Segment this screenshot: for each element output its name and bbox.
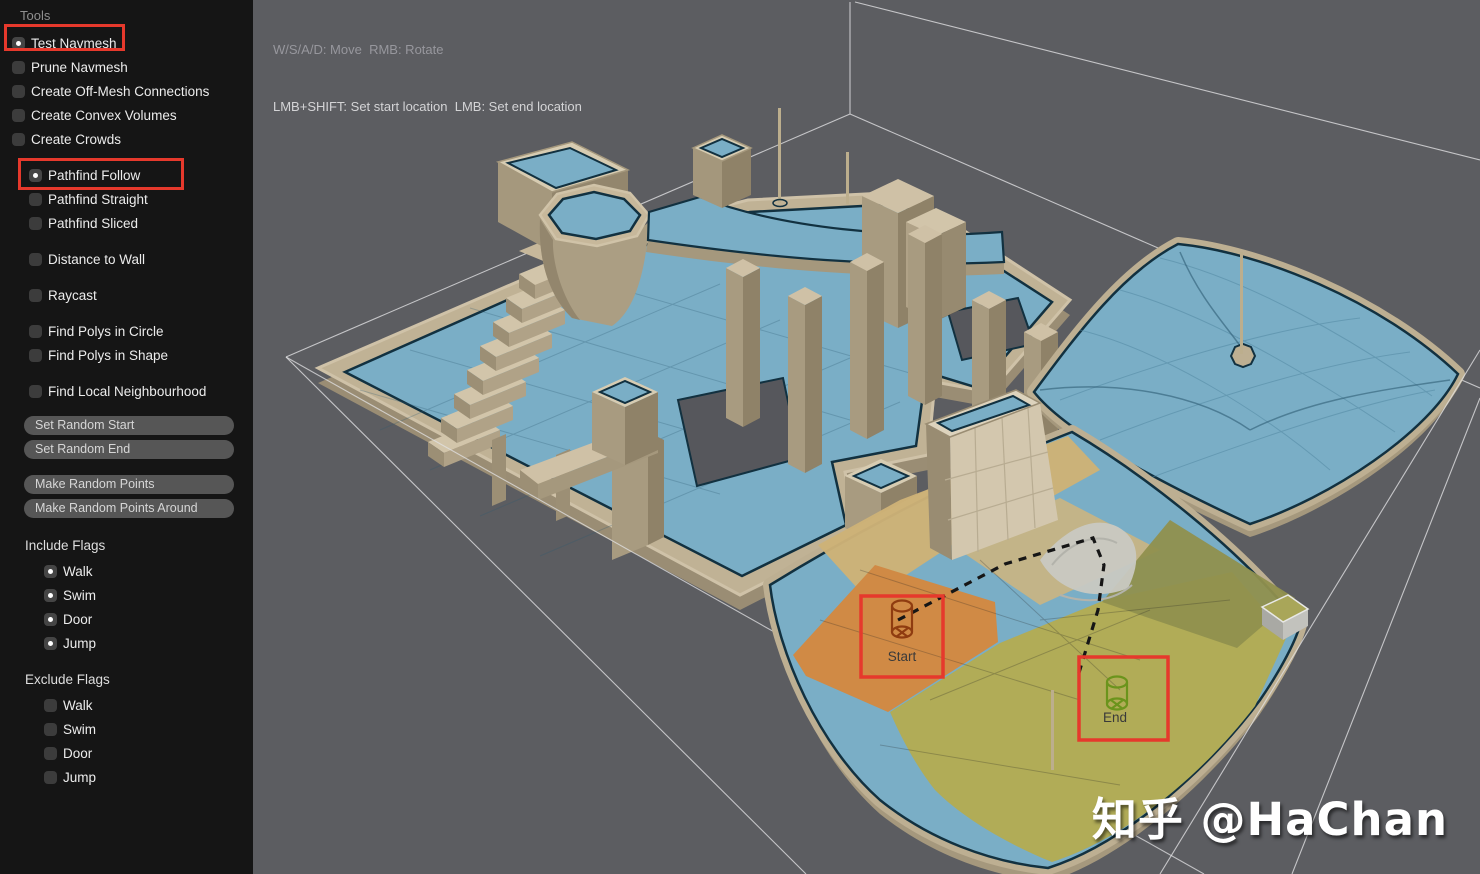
viewport-help: W/S/A/D: Move RMB: Rotate LMB+SHIFT: Set… — [273, 2, 582, 154]
pole — [1240, 252, 1243, 354]
checkbox-icon[interactable] — [44, 747, 57, 760]
tool-create-offmesh-connections[interactable]: Create Off-Mesh Connections — [0, 79, 253, 103]
mode-raycast[interactable]: Raycast — [0, 283, 253, 307]
tool-create-crowds[interactable]: Create Crowds — [0, 127, 253, 151]
checkbox-icon[interactable] — [44, 613, 57, 626]
checkbox-icon[interactable] — [44, 565, 57, 578]
make-random-points-around-button[interactable]: Make Random Points Around — [24, 499, 234, 518]
mode-pathfind-sliced[interactable]: Pathfind Sliced — [0, 211, 253, 235]
panel-title: Tools — [20, 8, 253, 23]
tower-blue-top-small — [592, 377, 658, 465]
mode-find-polys-in-circle[interactable]: Find Polys in Circle — [0, 319, 253, 343]
radio-icon[interactable] — [12, 85, 25, 98]
radio-icon[interactable] — [12, 61, 25, 74]
include-flag-door[interactable]: Door — [0, 607, 253, 631]
radio-icon[interactable] — [29, 169, 42, 182]
include-flags-title: Include Flags — [25, 535, 253, 557]
tower-blue-top — [693, 135, 751, 208]
end-label: End — [1103, 710, 1127, 725]
tool-test-navmesh[interactable]: Test Navmesh — [0, 31, 253, 55]
checkbox-icon[interactable] — [44, 589, 57, 602]
set-random-start-button[interactable]: Set Random Start — [24, 416, 234, 435]
poles — [773, 108, 849, 207]
radio-icon[interactable] — [12, 37, 25, 50]
exclude-flag-door[interactable]: Door — [0, 741, 253, 765]
recast-demo-app: Start End W/S/A/D: Move RMB: Rotate LMB+… — [0, 0, 1480, 874]
include-flag-swim[interactable]: Swim — [0, 583, 253, 607]
exclude-flag-swim[interactable]: Swim — [0, 717, 253, 741]
help-line-2: LMB+SHIFT: Set start location LMB: Set e… — [273, 97, 582, 116]
mode-find-polys-in-shape[interactable]: Find Polys in Shape — [0, 343, 253, 367]
checkbox-icon[interactable] — [44, 637, 57, 650]
radio-icon[interactable] — [29, 253, 42, 266]
tools-panel: Tools Test Navmesh Prune Navmesh Create … — [0, 0, 253, 874]
checkbox-icon[interactable] — [44, 723, 57, 736]
exclude-flags-title: Exclude Flags — [25, 669, 253, 691]
exclude-flag-walk[interactable]: Walk — [0, 693, 253, 717]
mode-pathfind-follow[interactable]: Pathfind Follow — [0, 163, 253, 187]
tool-prune-navmesh[interactable]: Prune Navmesh — [0, 55, 253, 79]
watermark: 知乎 @HaChan — [1092, 783, 1448, 848]
checkbox-icon[interactable] — [44, 699, 57, 712]
radio-icon[interactable] — [12, 133, 25, 146]
exclude-flag-jump[interactable]: Jump — [0, 765, 253, 789]
include-flag-jump[interactable]: Jump — [0, 631, 253, 655]
mode-pathfind-straight[interactable]: Pathfind Straight — [0, 187, 253, 211]
include-flag-walk[interactable]: Walk — [0, 559, 253, 583]
radio-icon[interactable] — [12, 109, 25, 122]
set-random-end-button[interactable]: Set Random End — [24, 440, 234, 459]
radio-icon[interactable] — [29, 325, 42, 338]
radio-icon[interactable] — [29, 193, 42, 206]
pole — [1051, 690, 1054, 770]
tool-create-convex-volumes[interactable]: Create Convex Volumes — [0, 103, 253, 127]
start-label: Start — [888, 649, 917, 664]
make-random-points-button[interactable]: Make Random Points — [24, 475, 234, 494]
radio-icon[interactable] — [29, 217, 42, 230]
mode-find-local-neighbourhood[interactable]: Find Local Neighbourhood — [0, 379, 253, 403]
radio-icon[interactable] — [29, 349, 42, 362]
radio-icon[interactable] — [29, 289, 42, 302]
mode-distance-to-wall[interactable]: Distance to Wall — [0, 247, 253, 271]
help-line-1: W/S/A/D: Move RMB: Rotate — [273, 40, 582, 59]
radio-icon[interactable] — [29, 385, 42, 398]
checkbox-icon[interactable] — [44, 771, 57, 784]
